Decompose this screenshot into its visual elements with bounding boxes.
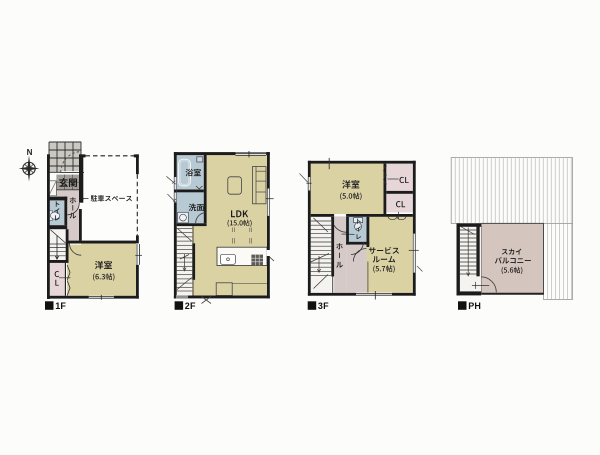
svg-text:2F: 2F [185,301,196,311]
svg-text:1F: 1F [55,301,66,311]
svg-text:PH: PH [468,301,481,311]
svg-text:3F: 3F [318,301,329,311]
svg-text:N: N [27,148,33,157]
